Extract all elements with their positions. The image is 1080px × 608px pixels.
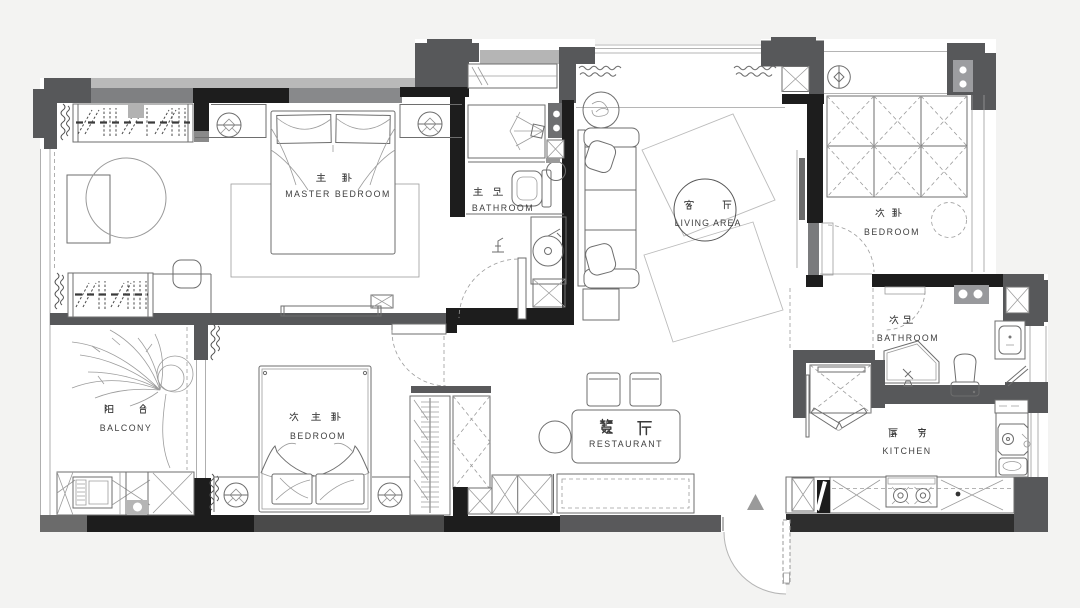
svg-text:BEDROOM: BEDROOM [290,431,346,441]
svg-text:BALCONY: BALCONY [100,423,153,433]
svg-text:BATHROOM: BATHROOM [877,333,939,343]
svg-text:BATHROOM: BATHROOM [472,203,534,213]
svg-text:BEDROOM: BEDROOM [864,227,920,237]
svg-text:LIVING AREA: LIVING AREA [675,218,742,228]
svg-text:RESTAURANT: RESTAURANT [589,439,663,449]
svg-text:MASTER BEDROOM: MASTER BEDROOM [285,189,391,199]
svg-text:KITCHEN: KITCHEN [882,446,931,456]
